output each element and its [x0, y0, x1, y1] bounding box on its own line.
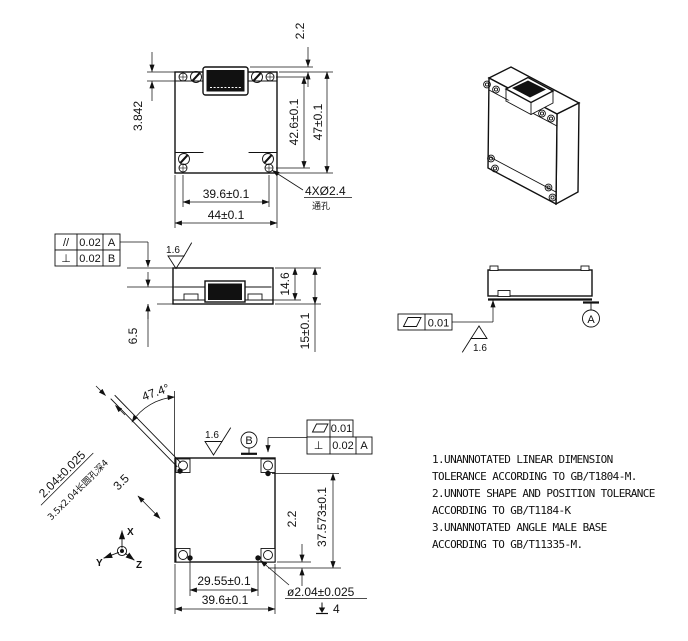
dim-angle-label: 47.4° [140, 381, 171, 404]
pin-callout: ø2.04±0.025 4 [261, 561, 368, 617]
pin-callout-label: ø2.04±0.025 [287, 585, 355, 599]
dim-width-bottom-label: 39.6±0.1 [202, 593, 249, 607]
flatness-value-bottom: 0.01 [331, 423, 352, 435]
note-line-2: TOLERANCE ACCORDING TO GB/T1804-M. [432, 470, 637, 483]
roughness-value-side: 1.6 [166, 245, 180, 256]
note-line-6: ACCORDING TO GB/T11335-M. [432, 538, 583, 551]
dim-pin-offset-label: 2.2 [285, 510, 299, 527]
note-line-4: ACCORDING TO GB/T1184-K [432, 504, 571, 517]
connector-front [203, 67, 248, 95]
dim-hole-span-v-label: 42.6±0.1 [287, 98, 301, 145]
dim-body-height-label: 14.6 [278, 272, 292, 296]
note-line-1: 1.UNANNOTATED LINEAR DIMENSION [432, 453, 613, 466]
parallelism-symbol: // [63, 237, 70, 249]
dim-29-55: 29.55±0.1 [190, 562, 258, 596]
fcf-flatness-bottom: 0.01 [307, 420, 353, 437]
right-side-view: A 0.01 1.6 [398, 266, 600, 354]
drawing-sheet: 47±0.1 42.6±0.1 2.2 3.842 39.6±0.1 [0, 0, 688, 641]
flatness-value-right: 0.01 [428, 318, 449, 330]
notes-block: 1.UNANNOTATED LINEAR DIMENSION TOLERANCE… [432, 453, 655, 551]
perpendicularity-symbol-bottom: ⊥ [314, 440, 324, 452]
hole-callout: 4XØ2.4 通孔 [273, 171, 353, 213]
dim-37-573: 37.573±0.1 [268, 474, 341, 569]
dim-slot-length-label: 3.5 [110, 471, 132, 493]
dim-42-6: 42.6±0.1 [276, 77, 310, 168]
datum-b-label: B [245, 435, 252, 447]
dim-14-6: 14.6 [273, 268, 301, 300]
datum-a: A [583, 303, 600, 328]
note-line-3: 2.UNNOTE SHAPE AND POSITION TOLERANCE [432, 487, 655, 500]
front-view: 47±0.1 42.6±0.1 2.2 3.842 39.6±0.1 [131, 22, 352, 228]
perpendicularity-symbol: ⊥ [61, 253, 71, 265]
dim-3-842: 3.842 [131, 52, 175, 131]
perpendicularity-datum-bottom: A [360, 440, 368, 452]
axis-z-label: Z [136, 560, 142, 571]
connector-side [205, 281, 245, 302]
dim-pin-span-h-label: 29.55±0.1 [197, 574, 251, 588]
pin-depth-label: 4 [333, 602, 340, 616]
dim-height-label: 47±0.1 [311, 103, 325, 140]
slot-annotation: 2.04±0.025 3.5x2.04长圆孔深4 3.5 [31, 386, 180, 523]
axis-x-label: X [127, 527, 134, 538]
fcf-parallelism: // 0.02 A [55, 234, 120, 250]
roughness-symbol-bottom: 1.6 [205, 428, 231, 455]
perpendicularity-value-bottom: 0.02 [332, 440, 353, 452]
parallelism-value: 0.02 [79, 237, 100, 249]
pin-holes [177, 468, 270, 560]
roughness-value-bottom: 1.6 [205, 430, 219, 441]
dim-39-6-front: 39.6±0.1 [183, 175, 269, 207]
roughness-symbol-side: 1.6 [166, 243, 191, 269]
dim-2-2-bottom: 2.2 [277, 510, 311, 586]
datum-a-label: A [587, 314, 595, 326]
hole-callout-note-label: 通孔 [312, 201, 330, 212]
hole-callout-label: 4XØ2.4 [305, 184, 346, 198]
dim-pin-span-v-label: 37.573±0.1 [315, 487, 329, 547]
note-line-5: 3.UNANNOTATED ANGLE MALE BASE [432, 521, 607, 534]
perpendicularity-datum: B [108, 253, 115, 265]
bottom-view: 1.6 B 0.01 ⊥ 0.02 A [31, 381, 372, 616]
dim-screw-offset-label: 3.842 [131, 101, 145, 131]
side-view: // 0.02 A ⊥ 0.02 B 1.6 6.5 [55, 234, 321, 352]
dim-angle-47-4: 47.4° [132, 381, 175, 456]
datum-b: B [241, 432, 257, 454]
dim-width-label: 44±0.1 [208, 208, 245, 222]
bottom-corner-bosses [176, 459, 275, 562]
depth-symbol-icon [316, 603, 328, 614]
fcf-perpendicularity: ⊥ 0.02 B [55, 250, 120, 266]
roughness-symbol-right: 1.6 [463, 326, 488, 354]
parallelism-datum: A [108, 237, 116, 249]
roughness-value-right: 1.6 [473, 343, 487, 354]
dim-hole-span-h-label: 39.6±0.1 [203, 187, 250, 201]
dim-total-height-label: 15±0.1 [298, 312, 312, 349]
dim-connector-protrusion-label: 2.2 [293, 22, 307, 39]
coordinate-triad: X Y Z [96, 527, 142, 571]
fcf-perpendicularity-bottom: ⊥ 0.02 A [307, 437, 372, 454]
isometric-view [484, 67, 579, 204]
dim-6-5: 6.5 [126, 272, 148, 347]
engineering-drawing-canvas: 47±0.1 42.6±0.1 2.2 3.842 39.6±0.1 [0, 0, 688, 641]
dim-connector-depth-label: 6.5 [126, 327, 140, 344]
dim-44: 44±0.1 [175, 175, 277, 228]
axis-y-label: Y [96, 558, 103, 569]
perpendicularity-value: 0.02 [79, 253, 100, 265]
